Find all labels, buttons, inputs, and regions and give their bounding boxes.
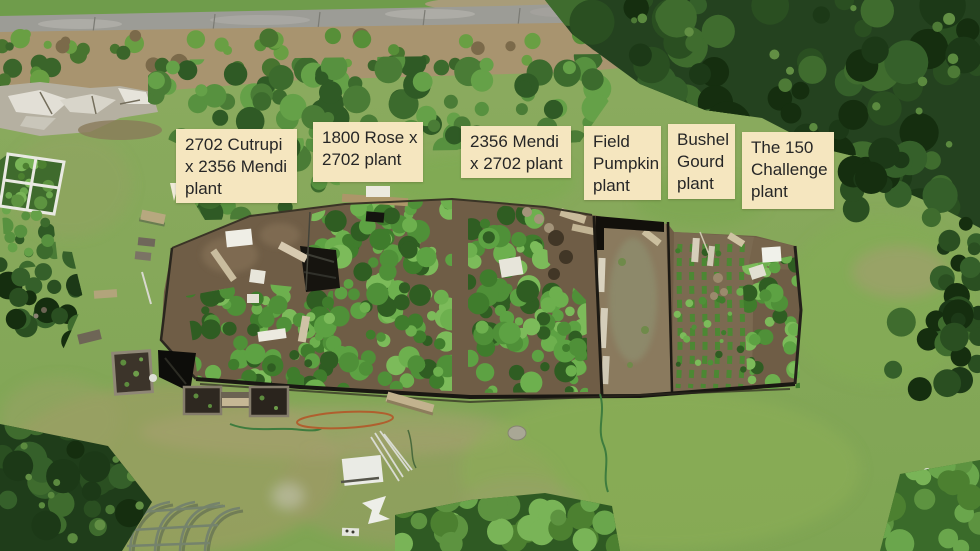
- aerial-photo-scene: [0, 0, 980, 551]
- label-line: Pumpkin: [593, 153, 652, 175]
- label-line: Field: [593, 131, 652, 153]
- label-line: Bushel: [677, 129, 726, 151]
- label-line: 1800 Rose x: [322, 127, 414, 149]
- stone: [508, 426, 526, 440]
- label-line: plant: [751, 181, 825, 203]
- plot-label-2702-cutrupi: 2702 Cutrupi x 2356 Mendi plant: [176, 129, 297, 203]
- label-line: Gourd: [677, 151, 726, 173]
- netted-garden-cage: [0, 154, 64, 214]
- plot-label-bushel-gourd: Bushel Gourd plant: [668, 124, 735, 199]
- rock-outcrop: [0, 82, 162, 140]
- plot-label-150-challenge: The 150 Challenge plant: [742, 132, 834, 209]
- label-line: 2702 Cutrupi: [185, 134, 288, 156]
- label-line: plant: [593, 175, 652, 197]
- plot-label-1800-rose: 1800 Rose x 2702 plant: [313, 122, 423, 182]
- label-line: 2356 Mendi: [470, 131, 562, 153]
- plot-label-field-pumpkin: Field Pumpkin plant: [584, 126, 661, 200]
- label-line: plant: [677, 173, 726, 195]
- label-line: 2702 plant: [322, 149, 414, 171]
- label-line: The 150: [751, 137, 825, 159]
- label-line: Challenge: [751, 159, 825, 181]
- label-line: x 2356 Mendi: [185, 156, 288, 178]
- label-line: x 2702 plant: [470, 153, 562, 175]
- annotated-aerial-photo: 2702 Cutrupi x 2356 Mendi plant 1800 Ros…: [0, 0, 980, 551]
- label-line: plant: [185, 178, 288, 200]
- plot-label-2356-mendi: 2356 Mendi x 2702 plant: [461, 126, 571, 178]
